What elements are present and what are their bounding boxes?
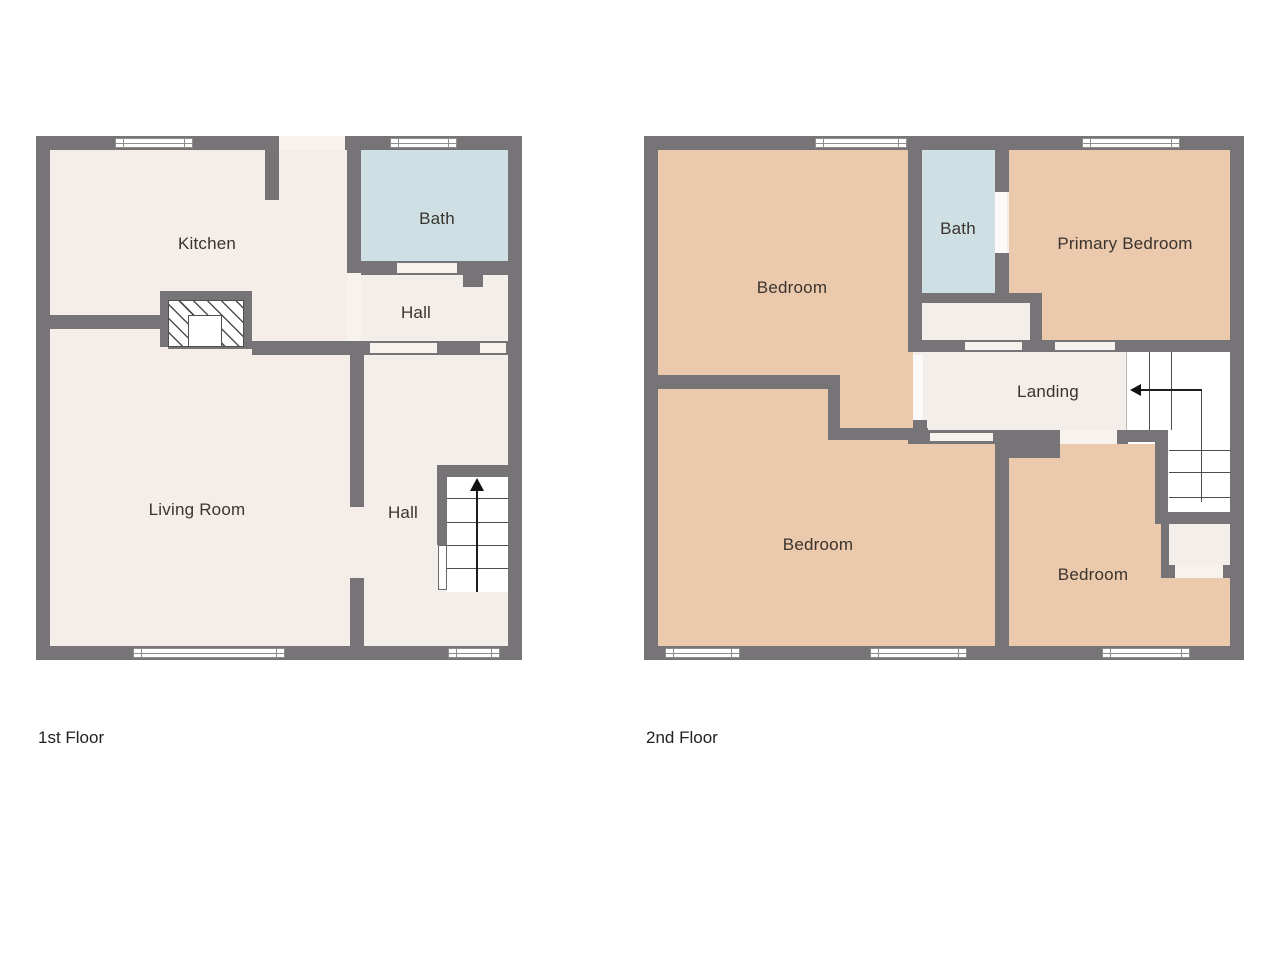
room-bath-floor bbox=[361, 150, 508, 261]
door-opening bbox=[347, 273, 361, 341]
wall bbox=[252, 341, 362, 355]
door-opening bbox=[913, 355, 923, 420]
stair-tread-line bbox=[1169, 497, 1231, 498]
window-glyph bbox=[1082, 138, 1180, 148]
window-glyph bbox=[815, 138, 907, 148]
wall bbox=[644, 136, 658, 660]
room-bedroom-top-left-floor bbox=[840, 375, 913, 428]
room-label-bedroom-bottom-left: Bedroom bbox=[783, 535, 853, 555]
room-label-primary-bedroom: Primary Bedroom bbox=[1057, 234, 1192, 254]
wall bbox=[1161, 565, 1175, 578]
floor-caption-first: 1st Floor bbox=[38, 728, 104, 748]
window-glyph bbox=[665, 648, 740, 658]
wall bbox=[658, 375, 828, 389]
wall bbox=[437, 477, 447, 545]
wall bbox=[908, 293, 1042, 303]
room-label-living-room: Living Room bbox=[149, 500, 246, 520]
stair-left-arrow-icon bbox=[1130, 384, 1141, 396]
room-label-bath: Bath bbox=[419, 209, 455, 229]
door-opening bbox=[279, 136, 345, 150]
room-label-hall-lower: Hall bbox=[388, 503, 418, 523]
wall bbox=[828, 375, 840, 433]
stair-direction-line bbox=[1140, 389, 1202, 391]
wall bbox=[350, 341, 364, 507]
door-opening bbox=[1175, 565, 1223, 578]
window-glyph bbox=[870, 648, 967, 658]
floor-caption-second: 2nd Floor bbox=[646, 728, 718, 748]
room-label-bedroom-top-left: Bedroom bbox=[757, 278, 827, 298]
wall bbox=[1155, 512, 1230, 524]
room-bedroom-top-left-floor bbox=[658, 150, 913, 375]
wall bbox=[995, 430, 1009, 646]
door-opening bbox=[930, 433, 993, 441]
stair-tread-line bbox=[1149, 352, 1150, 430]
wall bbox=[36, 315, 168, 329]
stair-tread-line bbox=[1171, 352, 1172, 430]
fireplace-wall bbox=[160, 291, 252, 300]
closet-nook-floor bbox=[922, 303, 1030, 340]
wall bbox=[36, 136, 50, 660]
door-opening bbox=[1060, 430, 1117, 444]
room-hall-upper-floor bbox=[361, 275, 508, 341]
room-bedroom-bottom-left-floor bbox=[658, 389, 828, 648]
wall bbox=[437, 465, 508, 477]
floor-plan-first-floor: Kitchen Bath Hall Living Room Hall bbox=[36, 136, 522, 660]
room-label-landing: Landing bbox=[1017, 382, 1079, 402]
stair-tread-line bbox=[1169, 472, 1231, 473]
wall bbox=[347, 150, 361, 273]
fireplace-firebox bbox=[188, 315, 222, 347]
closet-under-stairs-floor bbox=[1168, 524, 1230, 565]
room-bedroom-bottom-right-floor bbox=[1009, 444, 1155, 648]
window-glyph bbox=[133, 648, 285, 658]
wall bbox=[265, 150, 279, 200]
wall bbox=[908, 150, 922, 347]
window-glyph bbox=[448, 648, 500, 658]
stair-tread-line bbox=[1169, 450, 1231, 451]
stair-up-arrow-icon bbox=[470, 478, 484, 491]
fireplace-wall bbox=[244, 291, 252, 349]
floor-plan-second-floor: Bedroom Bath Primary Bedroom Landing Bed… bbox=[644, 136, 1244, 660]
wall bbox=[995, 150, 1009, 192]
wall bbox=[463, 275, 483, 287]
room-label-bedroom-bottom-right: Bedroom bbox=[1058, 565, 1128, 585]
stair-handrail bbox=[438, 545, 447, 590]
stair-tread-line bbox=[1201, 390, 1202, 502]
fireplace-wall bbox=[160, 291, 168, 347]
wall bbox=[350, 578, 364, 646]
room-label-kitchen: Kitchen bbox=[178, 234, 236, 254]
staircase-first-floor bbox=[447, 477, 508, 592]
room-label-hall-upper: Hall bbox=[401, 303, 431, 323]
room-label-bath: Bath bbox=[940, 219, 976, 239]
fireplace-wall bbox=[168, 347, 244, 349]
wall bbox=[1223, 565, 1230, 578]
window-glyph bbox=[1102, 648, 1190, 658]
wall bbox=[508, 136, 522, 660]
wall bbox=[1155, 430, 1168, 524]
wall bbox=[1230, 136, 1244, 660]
door-opening bbox=[370, 343, 437, 353]
door-opening bbox=[480, 343, 506, 353]
window-glyph bbox=[390, 138, 457, 148]
door-opening bbox=[1055, 342, 1115, 350]
stair-direction-line bbox=[476, 487, 478, 592]
window-glyph bbox=[115, 138, 193, 148]
door-opening bbox=[965, 342, 1022, 350]
door-opening bbox=[995, 192, 1007, 253]
room-bedroom-bottom-right-floor bbox=[1155, 578, 1230, 648]
door-opening bbox=[397, 263, 457, 273]
